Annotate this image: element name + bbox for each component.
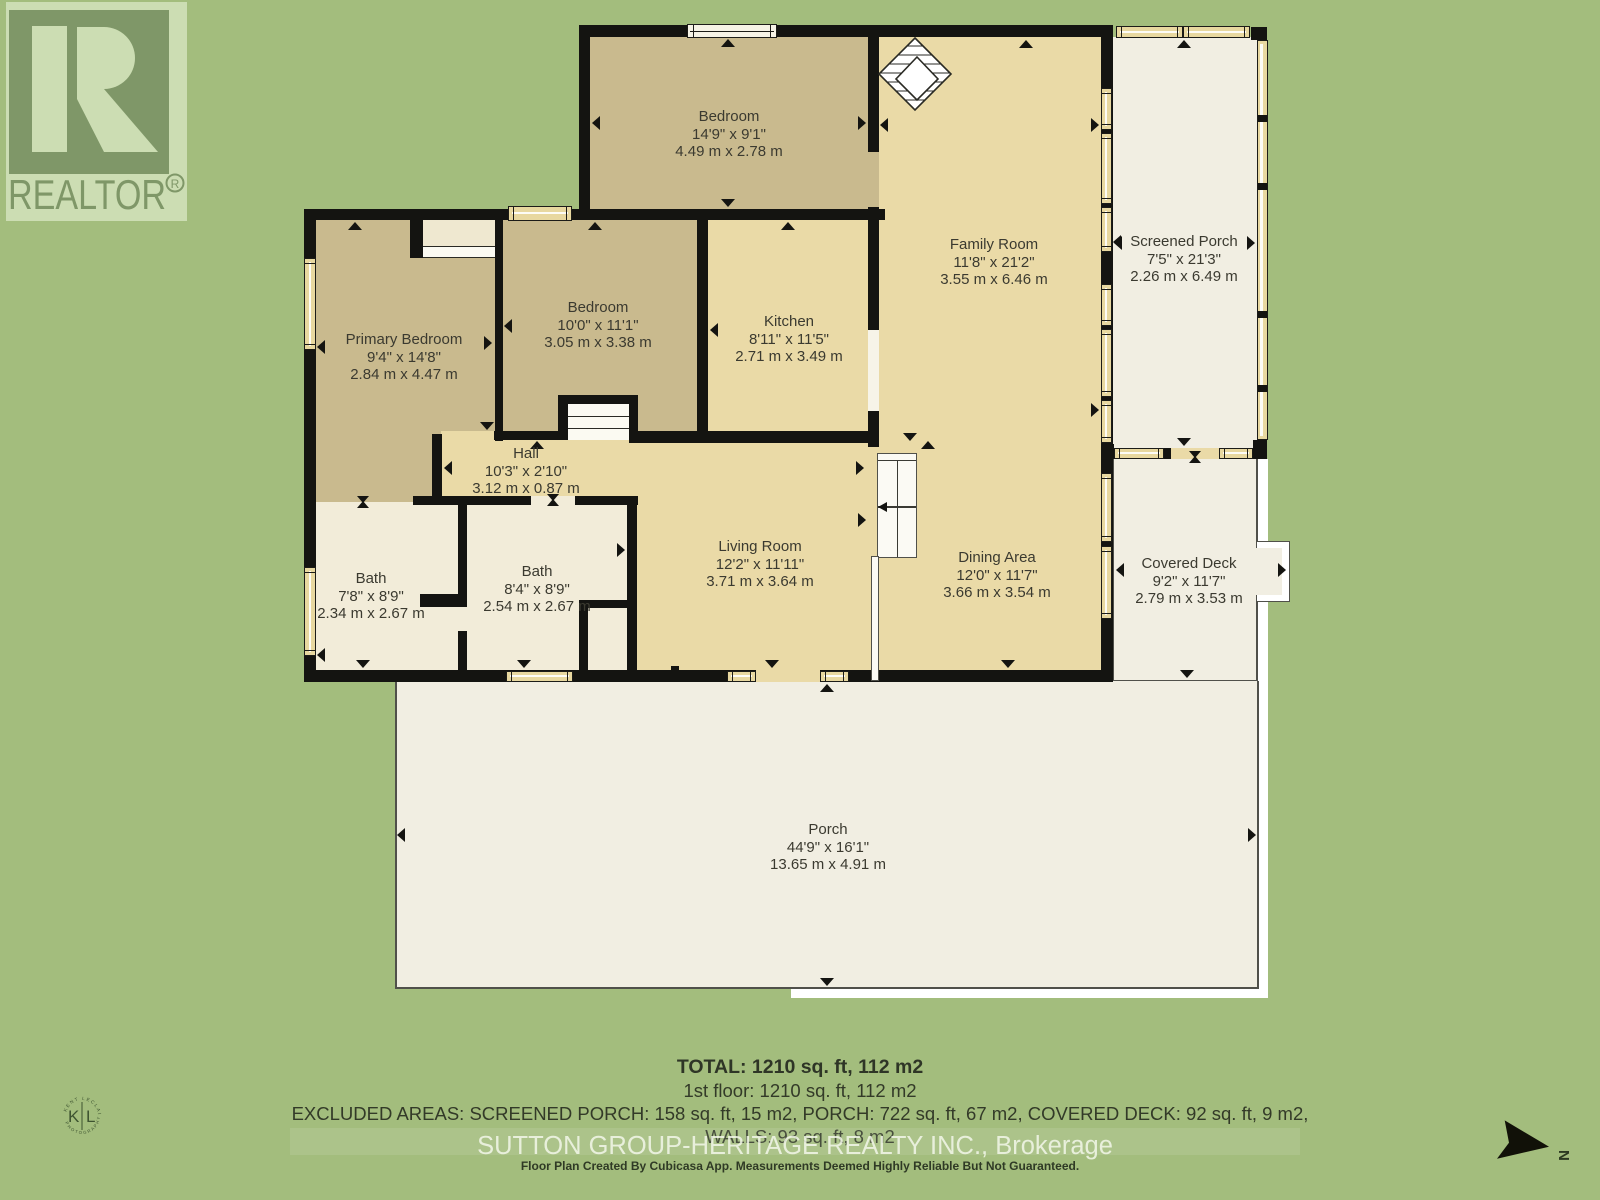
svg-text:REALTOR: REALTOR bbox=[8, 171, 166, 218]
svg-text:L: L bbox=[86, 1107, 95, 1126]
svg-text:R: R bbox=[171, 177, 180, 191]
svg-text:N: N bbox=[1555, 1150, 1572, 1161]
svg-text:K: K bbox=[68, 1107, 80, 1126]
